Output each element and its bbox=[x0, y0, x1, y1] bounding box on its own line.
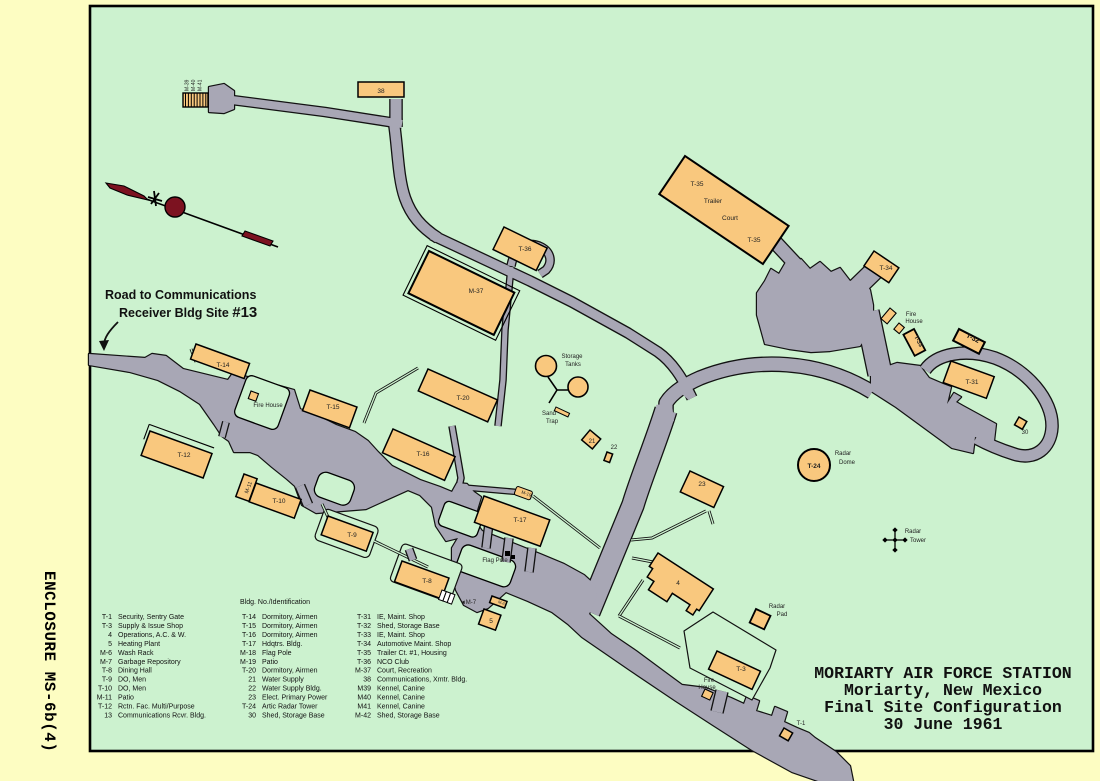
svg-text:Communications Rcvr. Bldg.: Communications Rcvr. Bldg. bbox=[118, 712, 206, 719]
svg-text:M-6: M-6 bbox=[100, 650, 112, 657]
svg-text:Elect. Primary Power: Elect. Primary Power bbox=[262, 695, 328, 702]
svg-text:House: House bbox=[905, 319, 923, 325]
svg-text:M40: M40 bbox=[357, 695, 371, 702]
svg-text:M-41: M-41 bbox=[198, 79, 204, 91]
svg-text:Flag Pole: Flag Pole bbox=[482, 558, 508, 564]
svg-text:Storage: Storage bbox=[561, 354, 583, 360]
svg-text:T-35: T-35 bbox=[357, 650, 371, 657]
svg-text:Dormitory, Airmen: Dormitory, Airmen bbox=[262, 623, 318, 630]
svg-text:Pad: Pad bbox=[777, 612, 788, 618]
svg-text:M-42: M-42 bbox=[355, 712, 371, 719]
svg-text:Dormitory, Airmen: Dormitory, Airmen bbox=[262, 668, 318, 675]
svg-text:T-8: T-8 bbox=[102, 668, 112, 675]
svg-text:T-3: T-3 bbox=[736, 666, 746, 673]
svg-text:Radar: Radar bbox=[769, 604, 785, 610]
svg-text:M-11: M-11 bbox=[97, 695, 113, 702]
svg-text:Sand: Sand bbox=[542, 411, 556, 417]
svg-text:T-15: T-15 bbox=[242, 623, 256, 630]
svg-text:13: 13 bbox=[104, 712, 112, 719]
svg-text:T-16: T-16 bbox=[242, 632, 256, 639]
svg-text:T-14: T-14 bbox=[242, 614, 256, 621]
svg-text:23: 23 bbox=[698, 481, 706, 488]
svg-text:T-15: T-15 bbox=[326, 404, 339, 411]
svg-text:Flag Pole: Flag Pole bbox=[262, 650, 292, 657]
svg-text:◄M-7: ◄M-7 bbox=[460, 600, 477, 606]
svg-text:Shed, Storage Base: Shed, Storage Base bbox=[377, 712, 440, 719]
svg-text:Kennel, Canine: Kennel, Canine bbox=[377, 704, 425, 711]
svg-text:T-36: T-36 bbox=[518, 246, 531, 253]
svg-text:21: 21 bbox=[248, 677, 256, 684]
svg-text:30 June 1961: 30 June 1961 bbox=[884, 715, 1003, 734]
svg-text:T-16: T-16 bbox=[416, 451, 429, 458]
svg-text:Kennel, Canine: Kennel, Canine bbox=[377, 695, 425, 702]
svg-text:M-19: M-19 bbox=[240, 659, 256, 666]
svg-text:T-35: T-35 bbox=[690, 181, 703, 188]
svg-text:T-12: T-12 bbox=[177, 452, 190, 459]
svg-text:Security, Sentry Gate: Security, Sentry Gate bbox=[118, 614, 184, 621]
svg-text:5: 5 bbox=[489, 618, 493, 625]
svg-text:21: 21 bbox=[589, 439, 596, 445]
svg-text:Court: Court bbox=[722, 215, 738, 222]
svg-text:Rctn. Fac. Multi/Purpose: Rctn. Fac. Multi/Purpose bbox=[118, 704, 195, 711]
svg-text:T-24: T-24 bbox=[242, 704, 256, 711]
svg-text:House: House bbox=[698, 685, 716, 691]
svg-text:Patio: Patio bbox=[118, 695, 134, 702]
svg-text:22: 22 bbox=[248, 686, 256, 693]
svg-text:T-17: T-17 bbox=[242, 641, 256, 648]
svg-text:Artic Radar Tower: Artic Radar Tower bbox=[262, 704, 318, 711]
svg-text:M-37: M-37 bbox=[469, 288, 484, 295]
svg-text:Dome: Dome bbox=[839, 460, 856, 466]
svg-text:T-36: T-36 bbox=[357, 659, 371, 666]
svg-text:Dormitory, Airmen: Dormitory, Airmen bbox=[262, 632, 318, 639]
svg-text:30: 30 bbox=[248, 712, 256, 719]
svg-text:M39: M39 bbox=[357, 686, 371, 693]
svg-text:Radar: Radar bbox=[835, 451, 851, 457]
svg-text:T-1: T-1 bbox=[102, 614, 112, 621]
svg-text:30: 30 bbox=[1022, 430, 1029, 436]
svg-text:T-32: T-32 bbox=[357, 623, 371, 630]
svg-text:DO, Men: DO, Men bbox=[118, 686, 146, 693]
svg-text:Dining Hall: Dining Hall bbox=[118, 668, 152, 675]
svg-text:M-40: M-40 bbox=[191, 79, 197, 91]
svg-text:Kennel, Canine: Kennel, Canine bbox=[377, 686, 425, 693]
svg-text:T-33: T-33 bbox=[357, 632, 371, 639]
svg-text:Communications, Xmtr. Bldg.: Communications, Xmtr. Bldg. bbox=[377, 677, 467, 684]
svg-text:Trap: Trap bbox=[546, 419, 559, 425]
svg-text:ENCLOSURE MS-6b(4): ENCLOSURE MS-6b(4) bbox=[40, 571, 58, 752]
svg-text:IE, Maint. Shop: IE, Maint. Shop bbox=[377, 632, 425, 639]
svg-text:Trailer Ct. #1, Housing: Trailer Ct. #1, Housing bbox=[377, 650, 447, 657]
svg-text:M-18: M-18 bbox=[240, 650, 256, 657]
svg-text:M-39: M-39 bbox=[185, 79, 191, 91]
svg-text:Dormitory, Airmen: Dormitory, Airmen bbox=[262, 614, 318, 621]
svg-text:T-20: T-20 bbox=[456, 395, 469, 402]
svg-text:DO, Men: DO, Men bbox=[118, 677, 146, 684]
svg-text:Tanks: Tanks bbox=[565, 362, 581, 368]
svg-text:Bldg. No./Identification: Bldg. No./Identification bbox=[240, 599, 310, 606]
svg-text:T-10: T-10 bbox=[98, 686, 112, 693]
svg-text:4: 4 bbox=[108, 632, 112, 639]
svg-text:T-20: T-20 bbox=[242, 668, 256, 675]
svg-text:T-10: T-10 bbox=[272, 498, 285, 505]
svg-text:Receiver Bldg Site #13: Receiver Bldg Site #13 bbox=[119, 304, 257, 321]
svg-text:23: 23 bbox=[248, 695, 256, 702]
svg-text:38: 38 bbox=[363, 677, 371, 684]
svg-text:Water Supply Bldg.: Water Supply Bldg. bbox=[262, 686, 322, 693]
svg-text:T-14: T-14 bbox=[216, 362, 229, 369]
svg-text:T-17: T-17 bbox=[513, 517, 526, 524]
svg-text:Fire: Fire bbox=[704, 678, 715, 684]
svg-text:Wash Rack: Wash Rack bbox=[118, 650, 154, 657]
svg-text:T-31: T-31 bbox=[965, 379, 978, 386]
svg-text:22: 22 bbox=[611, 445, 618, 451]
svg-text:T-31: T-31 bbox=[357, 614, 371, 621]
svg-text:T-9: T-9 bbox=[102, 677, 112, 684]
svg-text:T-24: T-24 bbox=[807, 463, 820, 470]
svg-text:Heating Plant: Heating Plant bbox=[118, 641, 160, 648]
svg-text:4: 4 bbox=[676, 580, 680, 587]
svg-text:T-9: T-9 bbox=[347, 532, 357, 539]
svg-text:Radar: Radar bbox=[905, 529, 921, 535]
svg-text:Shed, Storage Base: Shed, Storage Base bbox=[377, 623, 440, 630]
svg-text:Water Supply: Water Supply bbox=[262, 677, 304, 684]
svg-text:Patio: Patio bbox=[262, 659, 278, 666]
svg-text:T-8: T-8 bbox=[422, 578, 432, 585]
svg-text:T-12: T-12 bbox=[98, 704, 112, 711]
svg-text:Automotive Maint. Shop: Automotive Maint. Shop bbox=[377, 641, 451, 648]
svg-text:Hdqtrs. Bldg.: Hdqtrs. Bldg. bbox=[262, 641, 303, 648]
svg-text:NCO Club: NCO Club bbox=[377, 659, 409, 666]
svg-text:Fire: Fire bbox=[906, 312, 917, 318]
svg-text:Shed, Storage Base: Shed, Storage Base bbox=[262, 712, 325, 719]
svg-text:IE, Maint. Shop: IE, Maint. Shop bbox=[377, 614, 425, 621]
svg-text:M-37: M-37 bbox=[355, 668, 371, 675]
svg-text:Court, Recreation: Court, Recreation bbox=[377, 668, 432, 675]
svg-text:T-3: T-3 bbox=[102, 623, 112, 630]
svg-text:Fire House: Fire House bbox=[253, 403, 283, 409]
svg-text:Supply & Issue Shop: Supply & Issue Shop bbox=[118, 623, 183, 630]
svg-text:Road to Communications: Road to Communications bbox=[105, 288, 256, 302]
svg-text:Trailer: Trailer bbox=[704, 198, 723, 205]
svg-text:M41: M41 bbox=[357, 704, 371, 711]
svg-text:Garbage Repository: Garbage Repository bbox=[118, 659, 181, 666]
svg-text:T-34: T-34 bbox=[879, 265, 892, 272]
svg-text:T-35: T-35 bbox=[747, 237, 760, 244]
svg-text:T-1: T-1 bbox=[797, 721, 806, 727]
svg-text:5: 5 bbox=[108, 641, 112, 648]
svg-text:38: 38 bbox=[377, 88, 385, 95]
svg-text:Tower: Tower bbox=[910, 538, 926, 544]
svg-text:M-7: M-7 bbox=[100, 659, 112, 666]
svg-text:Operations, A.C. & W.: Operations, A.C. & W. bbox=[118, 632, 186, 639]
svg-text:T-34: T-34 bbox=[357, 641, 371, 648]
